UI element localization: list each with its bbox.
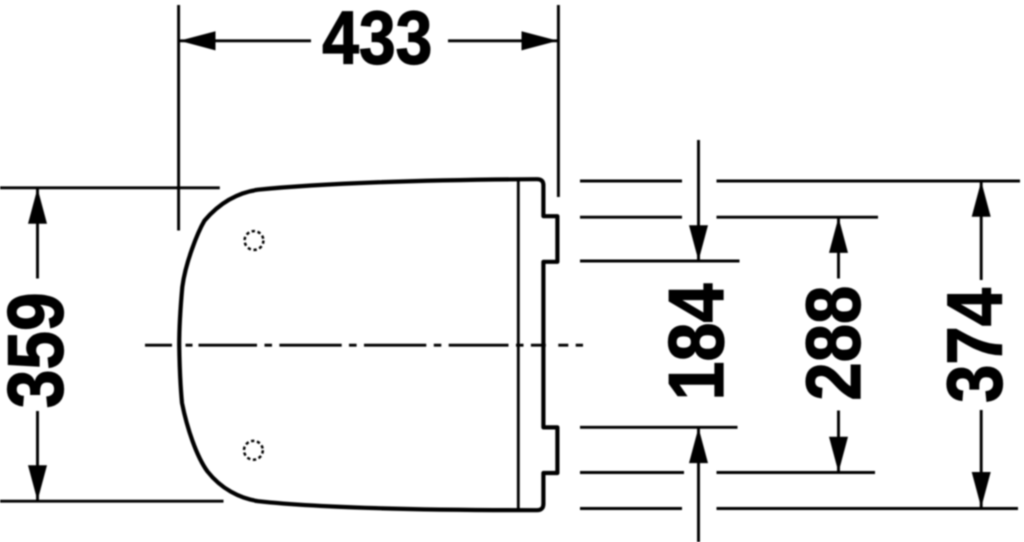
svg-text:184: 184 (652, 284, 740, 401)
svg-text:433: 433 (322, 0, 432, 80)
svg-text:359: 359 (0, 292, 79, 408)
svg-text:288: 288 (791, 286, 877, 401)
svg-text:374: 374 (930, 288, 1018, 403)
